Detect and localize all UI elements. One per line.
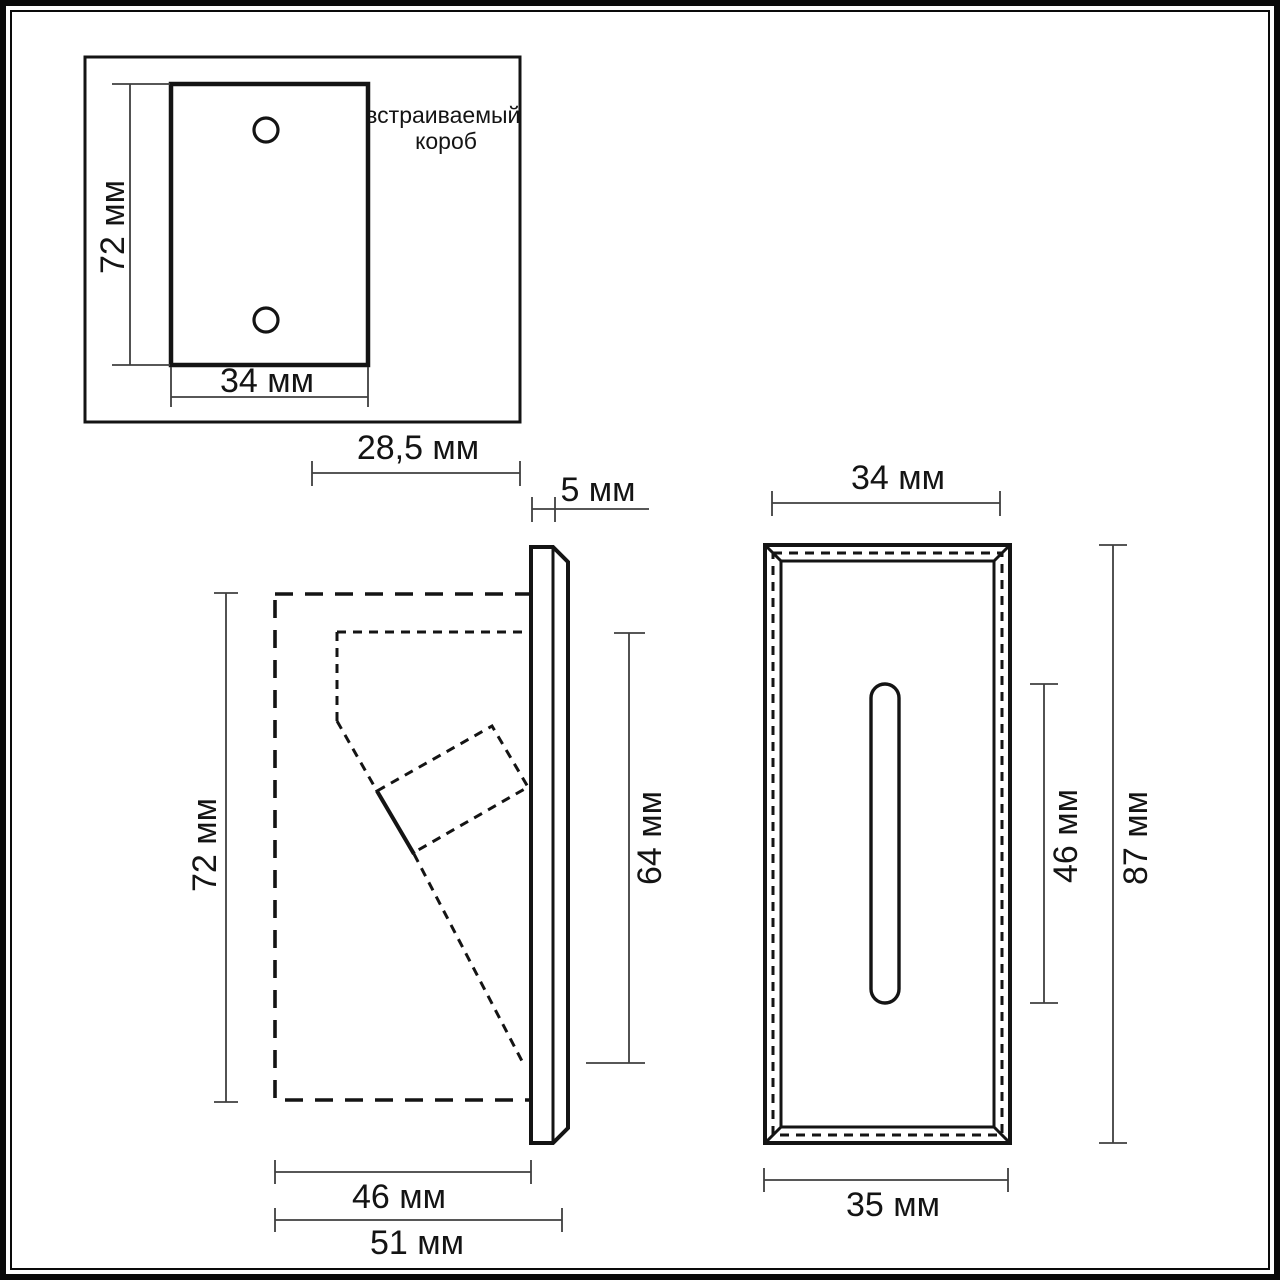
cavity-slope-lower [414,854,523,1063]
faceplate-front [765,545,1010,1143]
dim-label-body-width: 46 мм [352,1178,446,1216]
led-module-reflector-edge [377,791,414,854]
technical-drawing: 72 мм 34 мм встраиваемый короб 2 [0,0,1280,1280]
faceplate-inner-edge [781,561,994,1127]
recessed-box-label-line1: встраиваемый [365,102,520,128]
dim-protrusion: 5 мм [532,471,649,522]
recessed-box-label: встраиваемый короб [365,102,527,154]
cavity-hidden-outline [337,632,531,1063]
drawing-canvas: 72 мм 34 мм встраиваемый короб 2 [0,0,1280,1280]
dim-label-front-height: 87 мм [1117,791,1155,885]
led-module-hidden-outline [377,726,528,853]
dim-recess-depth: 28,5 мм [312,429,520,486]
dim-label-visible-height: 64 мм [631,791,669,885]
recessed-box-label-line2: короб [415,128,477,154]
dim-box-width: 34 мм [171,362,368,407]
dim-label-recess-depth: 28,5 мм [357,429,479,467]
dim-label-slot-height: 46 мм [1047,789,1085,883]
dim-label-side-height: 72 мм [186,798,224,892]
view-side-section: 28,5 мм 5 мм [186,429,669,1262]
dim-label-overall-width: 51 мм [370,1224,464,1262]
dim-label-box-width: 34 мм [220,362,314,400]
led-module [377,726,528,854]
light-slot [871,684,899,1003]
faceplate-side [531,547,568,1143]
view-mounting-box: 72 мм 34 мм встраиваемый короб [85,57,527,422]
dim-overall-width: 51 мм [275,1208,562,1262]
miter-top-right [994,545,1010,561]
dim-body-width: 46 мм [275,1160,531,1216]
dim-label-front-width-top: 34 мм [851,459,945,497]
view-front: 34 мм 46 мм [764,459,1155,1224]
dim-box-height: 72 мм [94,84,170,365]
dim-side-height: 72 мм [186,593,238,1102]
mounting-hole-bottom [254,308,278,332]
faceplate-bevel-hidden-line [773,553,1002,1135]
cavity-slope-upper [337,721,377,791]
dim-front-width-bottom: 35 мм [764,1168,1008,1224]
faceplate-outline [531,547,568,1143]
dim-visible-height: 64 мм [586,633,669,1063]
mounting-hole-top [254,118,278,142]
dim-slot-height: 46 мм [1030,684,1085,1003]
dim-label-protrusion: 5 мм [560,471,635,509]
dim-front-height: 87 мм [1099,545,1155,1143]
mounting-box-outline [171,84,368,365]
faceplate-outer-edge [765,545,1010,1143]
dim-front-width-top: 34 мм [772,459,1000,516]
dim-label-box-height: 72 мм [94,180,132,274]
dim-label-front-width-bottom: 35 мм [846,1186,940,1224]
recess-body-hidden-outline [275,594,531,1100]
